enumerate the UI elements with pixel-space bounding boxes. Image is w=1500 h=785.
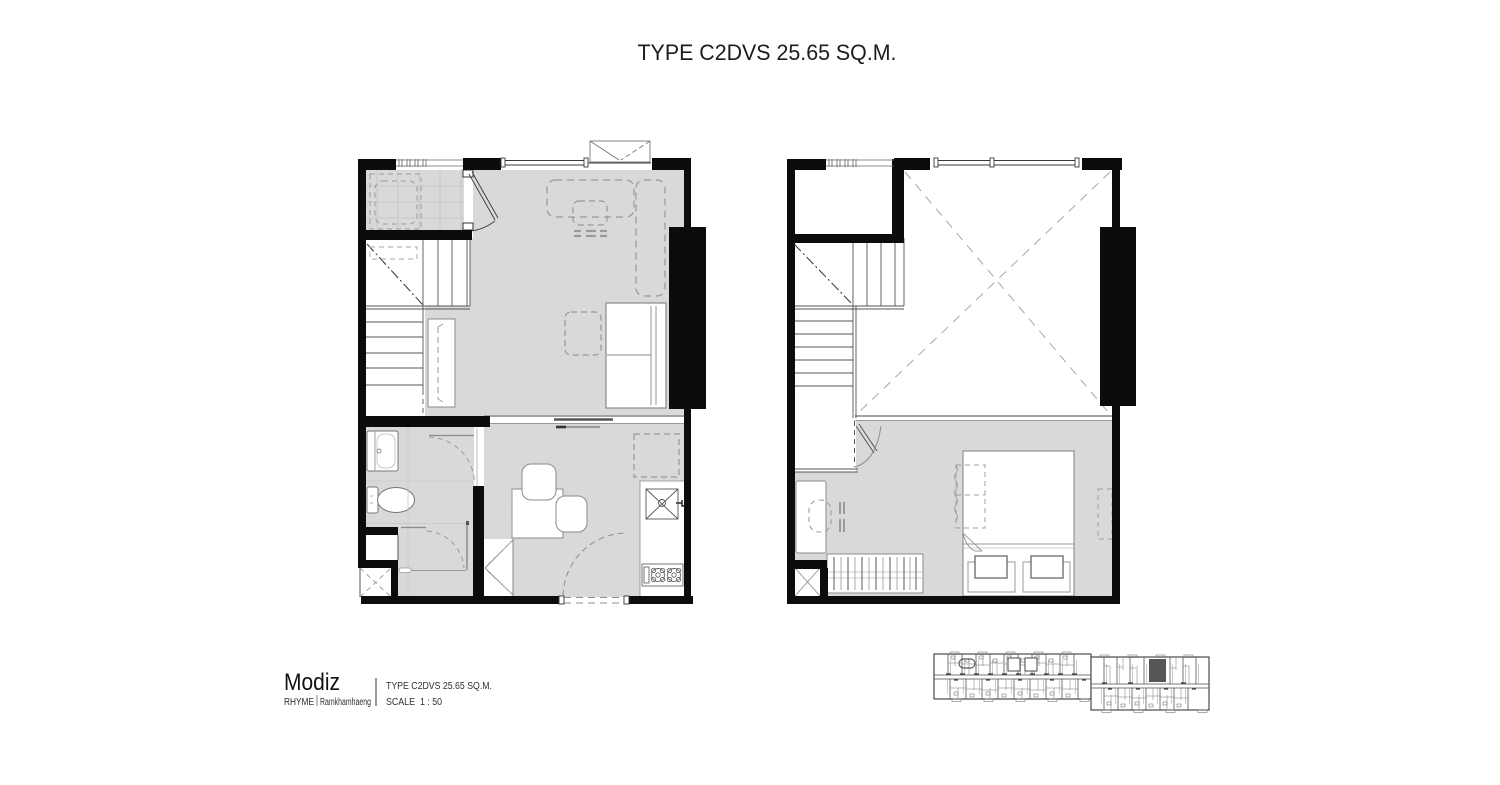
svg-text:1 : 50: 1 : 50	[420, 697, 442, 708]
svg-text:TYPE C2DVS 25.65 SQ.M.: TYPE C2DVS 25.65 SQ.M.	[386, 681, 492, 692]
svg-text:Modiz: Modiz	[284, 670, 340, 696]
svg-text:TYPE C2DVS 25.65 SQ.M.: TYPE C2DVS 25.65 SQ.M.	[638, 40, 897, 65]
svg-text:SCALE: SCALE	[386, 697, 415, 708]
svg-text:Ramkhamhaeng: Ramkhamhaeng	[320, 697, 371, 708]
svg-text:RHYME: RHYME	[284, 697, 314, 708]
